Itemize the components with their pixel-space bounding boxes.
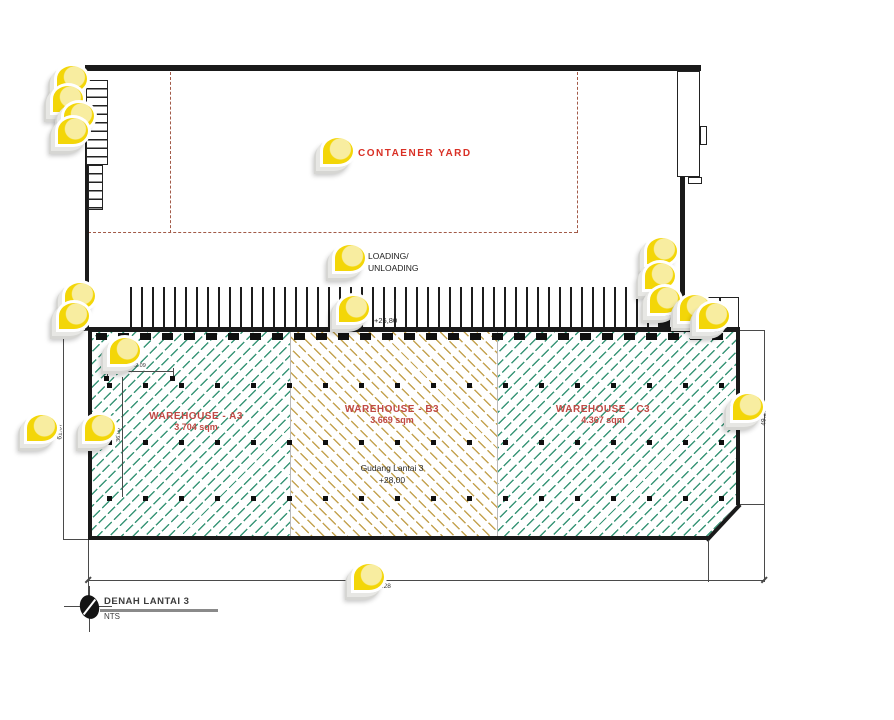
dock-door-line	[570, 287, 572, 328]
dock-door-line	[174, 287, 176, 328]
column-marker	[395, 383, 400, 388]
warehouse-a3-name: WAREHOUSE - A3	[128, 411, 264, 422]
dock-door-line	[295, 287, 297, 328]
column-marker	[539, 440, 544, 445]
annotation-marker[interactable]	[107, 335, 143, 367]
dock-bumper	[360, 333, 371, 340]
dim-ext-mid	[708, 540, 709, 582]
dock-bumper	[272, 333, 283, 340]
column-marker	[107, 496, 112, 501]
dim-inner-h-end1	[107, 368, 108, 376]
warehouse-c3-hatch	[497, 331, 739, 537]
annotation-marker[interactable]	[696, 300, 732, 332]
annotation-marker[interactable]	[332, 242, 368, 274]
column-marker	[467, 383, 472, 388]
dock-bumper	[338, 333, 349, 340]
column-marker	[104, 376, 109, 381]
column-marker	[503, 440, 508, 445]
column-marker	[467, 440, 472, 445]
dock-door-line	[438, 287, 440, 328]
dock-bumper	[536, 333, 547, 340]
loading-label-line1: LOADING/	[368, 251, 419, 263]
column-marker	[323, 440, 328, 445]
dock-bumper	[712, 333, 723, 340]
warehouse-c3-area: 4.367 sqm	[533, 415, 673, 425]
dock-bumper	[602, 333, 613, 340]
dim-ext-right	[764, 505, 765, 582]
column-marker	[323, 496, 328, 501]
drawing-title: DENAH LANTAI 3	[104, 596, 189, 607]
room-top-right	[677, 71, 700, 177]
annotation-marker[interactable]	[82, 412, 118, 444]
dim-inner-h-line	[107, 371, 173, 372]
dock-bumper	[492, 333, 503, 340]
column-marker	[575, 383, 580, 388]
dim-inner-v-line	[122, 377, 123, 497]
column-marker	[431, 440, 436, 445]
dock-level-tick	[394, 299, 396, 314]
column-marker	[431, 383, 436, 388]
dock-door-line	[130, 287, 132, 328]
dock-door-line	[416, 287, 418, 328]
annotation-marker[interactable]	[320, 135, 356, 167]
column-marker	[719, 496, 724, 501]
dock-door-line	[482, 287, 484, 328]
dock-door-line	[427, 287, 429, 328]
dock-door-line	[152, 287, 154, 328]
column-marker	[647, 383, 652, 388]
dock-bumper	[96, 333, 107, 340]
column-marker	[611, 383, 616, 388]
column-marker	[539, 496, 544, 501]
column-marker	[287, 383, 292, 388]
dock-door-line	[207, 287, 209, 328]
warehouse-a3-label: WAREHOUSE - A3 3.704 sqm	[128, 411, 264, 432]
dock-door-line	[449, 287, 451, 328]
column-marker	[467, 496, 472, 501]
column-marker	[359, 496, 364, 501]
dock-bumper	[316, 333, 327, 340]
dock-bumper	[668, 333, 679, 340]
dock-bumper	[690, 333, 701, 340]
dock-door-line	[548, 287, 550, 328]
column-marker	[359, 383, 364, 388]
yard-dashed-line-right	[577, 72, 578, 233]
dock-door-line	[229, 287, 231, 328]
dim-right-ext-bottom	[740, 504, 764, 505]
dock-door-line	[405, 287, 407, 328]
floor-note-line2: +28,00	[332, 474, 452, 486]
warehouse-b3-area: 3.669 sqm	[322, 415, 462, 425]
column-marker	[251, 496, 256, 501]
dock-bumper	[250, 333, 261, 340]
column-marker	[215, 383, 220, 388]
floor-note-line1: Gudang Lantai 3	[332, 462, 452, 474]
dock-door-line	[251, 287, 253, 328]
dock-bumper	[514, 333, 525, 340]
dock-door-line	[592, 287, 594, 328]
dock-door-line	[284, 287, 286, 328]
dock-door-line	[603, 287, 605, 328]
dock-bumper	[404, 333, 415, 340]
dock-bumper	[646, 333, 657, 340]
dock-door-line	[218, 287, 220, 328]
floor-note: Gudang Lantai 3 +28,00	[332, 462, 452, 486]
container-yard-label: CONTAENER YARD	[358, 148, 472, 159]
dock-door-line	[515, 287, 517, 328]
dock-bumper	[184, 333, 195, 340]
column-marker	[719, 440, 724, 445]
dim-inner-h-end2	[173, 368, 174, 376]
dim-left-ext-bottom	[63, 539, 88, 540]
dock-bumper	[162, 333, 173, 340]
floorplan-canvas: CONTAENER YARD LOADING/ UNLOADING +26,80…	[0, 0, 894, 720]
dock-door-line	[306, 287, 308, 328]
dock-door-line	[460, 287, 462, 328]
dock-bumper	[228, 333, 239, 340]
column-marker	[575, 440, 580, 445]
annotation-marker[interactable]	[55, 115, 91, 147]
loading-label-line2: UNLOADING	[368, 263, 419, 275]
column-marker	[251, 383, 256, 388]
column-marker	[611, 496, 616, 501]
warehouse-c3-label: WAREHOUSE - C3 4.367 sqm	[533, 404, 673, 425]
warehouse-b3-name: WAREHOUSE - B3	[322, 404, 462, 415]
dock-bumper	[470, 333, 481, 340]
annotation-marker[interactable]	[56, 300, 92, 332]
warehouse-a3-area: 3.704 sqm	[128, 422, 264, 432]
dock-door-line	[504, 287, 506, 328]
annotation-marker[interactable]	[351, 561, 387, 593]
room-top-right-bump	[700, 126, 707, 145]
section-divider-a-b	[290, 331, 291, 537]
dock-door-line	[163, 287, 165, 328]
dock-door-line	[559, 287, 561, 328]
column-marker	[215, 440, 220, 445]
dock-level-label: +26,80	[374, 316, 397, 325]
column-marker	[179, 440, 184, 445]
column-marker	[683, 440, 688, 445]
column-marker	[143, 496, 148, 501]
warehouse-bottom-wall	[88, 536, 709, 540]
annotation-marker[interactable]	[336, 293, 372, 325]
dock-door-line	[328, 287, 330, 328]
dock-bumper	[580, 333, 591, 340]
column-marker	[395, 496, 400, 501]
dock-door-line	[493, 287, 495, 328]
dock-bumper	[382, 333, 393, 340]
loading-label: LOADING/ UNLOADING	[368, 251, 419, 274]
warehouse-c3-name: WAREHOUSE - C3	[533, 404, 673, 415]
dim-tick	[761, 576, 768, 583]
dock-door-line	[240, 287, 242, 328]
dock-door-line	[526, 287, 528, 328]
warehouse-b3-hatch	[290, 331, 497, 537]
column-marker	[143, 383, 148, 388]
section-divider-b-c	[497, 331, 498, 537]
dock-door-line	[471, 287, 473, 328]
dock-bumper	[624, 333, 635, 340]
column-marker	[215, 496, 220, 501]
dock-door-line	[273, 287, 275, 328]
dim-bottom-line	[88, 580, 765, 581]
column-marker	[719, 383, 724, 388]
dock-bumper	[448, 333, 459, 340]
dock-door-line	[185, 287, 187, 328]
column-marker	[647, 496, 652, 501]
drawing-scale: NTS	[104, 612, 120, 621]
annotation-marker[interactable]	[730, 391, 766, 423]
dock-door-line	[317, 287, 319, 328]
column-marker	[179, 496, 184, 501]
yard-top-wall	[85, 65, 701, 71]
column-marker	[287, 440, 292, 445]
column-marker	[539, 383, 544, 388]
column-marker	[251, 440, 256, 445]
column-marker	[287, 496, 292, 501]
column-marker	[683, 496, 688, 501]
dock-bumper	[206, 333, 217, 340]
column-marker	[170, 376, 175, 381]
yard-dashed-line-left	[170, 72, 171, 233]
dock-door-line	[636, 287, 638, 328]
column-marker	[503, 383, 508, 388]
column-marker	[359, 440, 364, 445]
dock-door-line	[262, 287, 264, 328]
dock-door-line	[141, 287, 143, 328]
column-marker	[503, 496, 508, 501]
stair-core-left-lower	[88, 165, 103, 210]
column-marker	[323, 383, 328, 388]
dock-door-line	[581, 287, 583, 328]
column-marker	[647, 440, 652, 445]
room-top-right-step	[688, 177, 702, 184]
dock-door-line	[614, 287, 616, 328]
column-marker	[395, 440, 400, 445]
dock-bumper	[140, 333, 151, 340]
annotation-marker[interactable]	[24, 412, 60, 444]
column-marker	[431, 496, 436, 501]
dock-door-line	[196, 287, 198, 328]
dock-bumper	[558, 333, 569, 340]
dock-door-line	[625, 287, 627, 328]
column-marker	[179, 383, 184, 388]
dock-door-line	[537, 287, 539, 328]
warehouse-b3-label: WAREHOUSE - B3 3.669 sqm	[322, 404, 462, 425]
dim-right-ext-top	[740, 330, 764, 331]
column-marker	[611, 440, 616, 445]
column-marker	[143, 440, 148, 445]
warehouse-top-wall	[88, 327, 740, 332]
dock-bumper	[426, 333, 437, 340]
column-marker	[107, 383, 112, 388]
dock-bumper	[294, 333, 305, 340]
column-marker	[683, 383, 688, 388]
column-marker	[575, 496, 580, 501]
yard-dashed-line-bottom	[88, 232, 577, 233]
